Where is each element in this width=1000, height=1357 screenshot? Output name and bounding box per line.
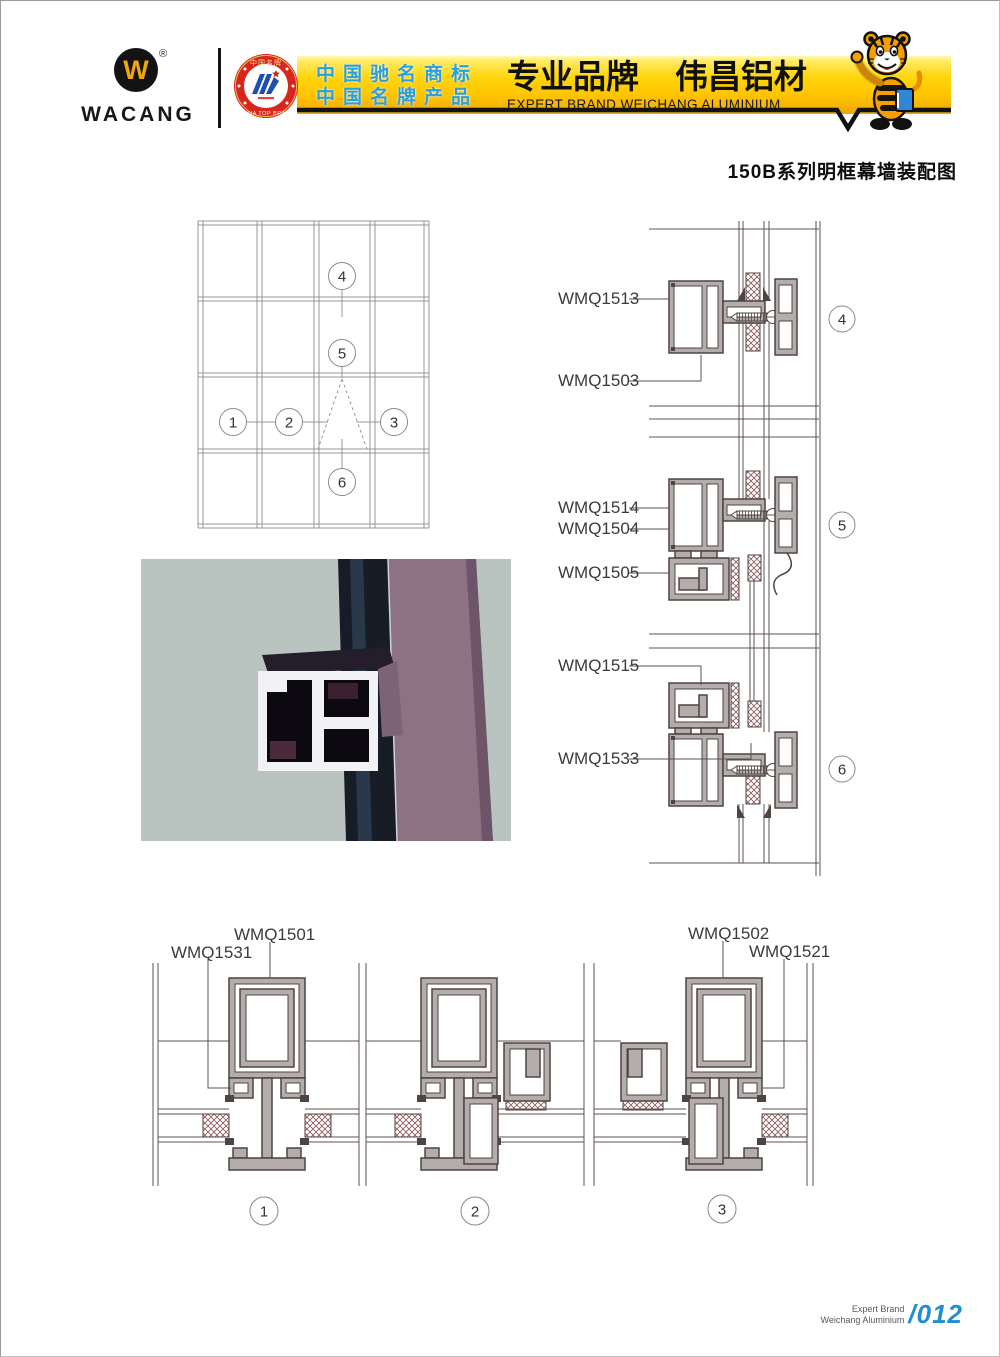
detail-callout-2: 2 <box>461 1197 489 1225</box>
svg-text:5: 5 <box>838 518 846 535</box>
section-detail-6 <box>669 683 797 818</box>
product-photo <box>141 559 511 841</box>
detail-callout-6: 6 <box>829 756 855 782</box>
svg-text:6: 6 <box>338 475 346 492</box>
vent-opening-symbol <box>318 379 367 449</box>
part-label-wmq1514: WMQ1514 <box>558 498 639 518</box>
elevation-diagram: 4 5 1 2 3 6 <box>186 215 441 537</box>
svg-text:4: 4 <box>838 312 846 329</box>
part-label-wmq1515: WMQ1515 <box>558 656 639 676</box>
svg-text:6: 6 <box>838 762 846 779</box>
svg-text:2: 2 <box>471 1204 479 1221</box>
part-label-wmq1503: WMQ1503 <box>558 371 639 391</box>
brand-cn-expert: 专业品牌 <box>507 58 639 96</box>
horizontal-section-details: 1 2 3 <box>146 921 936 1226</box>
part-label-wmq1521: WMQ1521 <box>749 942 830 962</box>
section-detail-4 <box>669 279 797 355</box>
section-detail-5 <box>669 477 797 600</box>
detail-callout-1: 1 <box>250 1197 278 1225</box>
page-number: /012 <box>908 1299 963 1330</box>
svg-text:1: 1 <box>229 415 237 432</box>
detail-callout-3: 3 <box>708 1195 736 1223</box>
banner-brand-block: 专业品牌 伟昌铝材 EXPERT BRAND WEICHANG ALUMINIU… <box>507 58 807 112</box>
elevation-callout-1: 1 <box>220 409 247 436</box>
part-label-wmq1531: WMQ1531 <box>171 943 252 963</box>
banner-slogan-2: 中国名牌产品 <box>316 86 478 109</box>
registered-mark: ® <box>159 48 167 60</box>
part-label-wmq1504: WMQ1504 <box>558 519 639 539</box>
elevation-callout-6: 6 <box>329 469 356 496</box>
badge-bottom-text: CHINA TOP BRAND <box>237 111 295 117</box>
detail-callout-5: 5 <box>829 512 855 538</box>
wacang-logo: W ® WACANG <box>77 45 199 127</box>
elevation-callout-2: 2 <box>276 409 303 436</box>
part-label-wmq1501: WMQ1501 <box>234 925 315 945</box>
svg-text:5: 5 <box>338 346 346 363</box>
elevation-callout-4: 4 <box>329 263 356 290</box>
part-label-wmq1505: WMQ1505 <box>558 563 639 583</box>
header-divider <box>218 48 221 128</box>
plan-detail-1 <box>158 978 359 1170</box>
vertical-section-details: 4 5 6 <box>546 216 876 886</box>
glass-spacers <box>746 273 761 804</box>
tiger-mascot-icon <box>843 29 931 131</box>
logo-w-glyph: W <box>123 55 149 85</box>
elevation-grid <box>198 221 429 528</box>
svg-text:3: 3 <box>390 415 398 432</box>
brand-en-line: EXPERT BRAND WEICHANG ALUMINIUM <box>507 97 807 112</box>
svg-text:1: 1 <box>260 1204 268 1221</box>
elevation-callout-5: 5 <box>329 340 356 367</box>
part-label-wmq1502: WMQ1502 <box>688 924 769 944</box>
banner-slogans: 中国驰名商标 中国名牌产品 <box>316 63 478 109</box>
badge-top-text: 中国名牌 <box>250 58 282 67</box>
elevation-callout-3: 3 <box>381 409 408 436</box>
footer-brand-line2: Weichang Aluminium <box>821 1315 905 1326</box>
china-top-brand-badge-icon: 中国名牌 CHINA TOP BRAND <box>232 52 300 120</box>
wacang-logo-icon: W ® <box>106 45 170 97</box>
brand-cn-weichang: 伟昌铝材 <box>675 58 807 96</box>
svg-text:2: 2 <box>285 415 293 432</box>
plan-detail-2 <box>366 978 584 1170</box>
brand-wordmark: WACANG <box>77 103 199 127</box>
part-label-wmq1513: WMQ1513 <box>558 289 639 309</box>
footer-brand-line1: Expert Brand <box>821 1304 905 1315</box>
profile-cut-face <box>258 671 378 771</box>
svg-text:3: 3 <box>718 1202 726 1219</box>
svg-text:4: 4 <box>338 269 346 286</box>
plan-detail-3 <box>594 978 807 1170</box>
part-label-wmq1533: WMQ1533 <box>558 749 639 769</box>
banner-slogan-1: 中国驰名商标 <box>316 63 478 86</box>
detail-callout-4: 4 <box>829 306 855 332</box>
page-title: 150B系列明框幕墙装配图 <box>728 157 957 184</box>
catalog-page: W ® WACANG 中国驰名商标 中国名牌产品 专业品牌 伟昌铝材 EXPER… <box>0 0 1000 1357</box>
page-footer: Expert Brand Weichang Aluminium /012 <box>821 1299 963 1330</box>
